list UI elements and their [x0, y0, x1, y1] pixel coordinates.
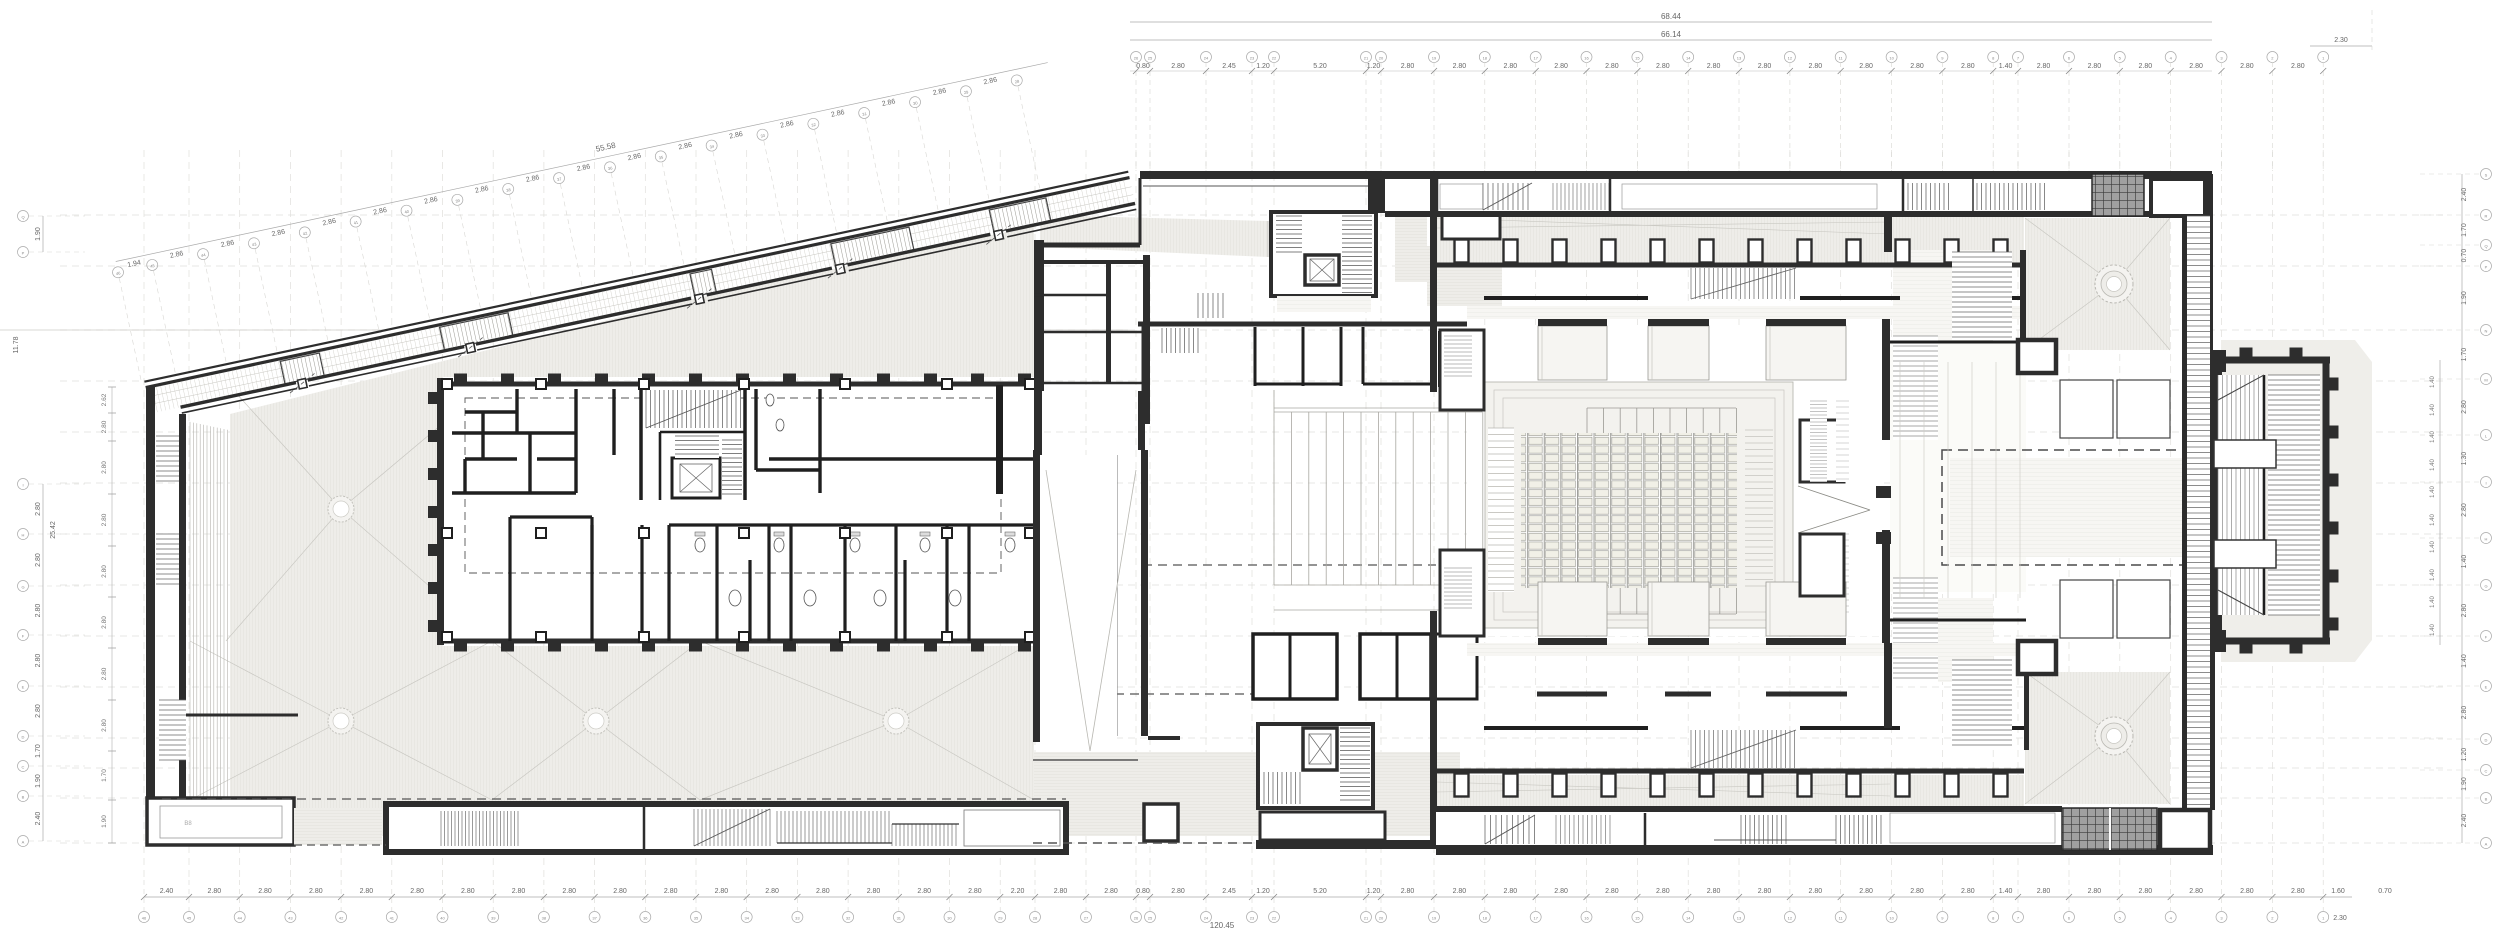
svg-text:2.80: 2.80	[1554, 63, 1568, 70]
svg-text:6: 6	[2068, 56, 2071, 61]
svg-text:1.90: 1.90	[35, 774, 42, 788]
svg-text:9: 9	[1941, 56, 1944, 61]
svg-text:55.58: 55.58	[595, 141, 617, 154]
svg-text:2.80: 2.80	[1656, 63, 1670, 70]
svg-text:35: 35	[658, 154, 664, 160]
svg-text:1.40: 1.40	[2430, 514, 2436, 526]
svg-text:2.86: 2.86	[169, 250, 184, 260]
svg-text:2.80: 2.80	[360, 888, 374, 895]
svg-text:45: 45	[187, 916, 192, 921]
svg-text:2.80: 2.80	[968, 888, 982, 895]
svg-text:2.80: 2.80	[765, 888, 779, 895]
svg-text:31: 31	[897, 916, 902, 921]
svg-text:11: 11	[1839, 56, 1844, 61]
svg-text:2.80: 2.80	[101, 719, 108, 732]
svg-text:1.40: 1.40	[2430, 431, 2436, 443]
svg-text:1.40: 1.40	[2430, 569, 2436, 581]
svg-text:2.86: 2.86	[271, 229, 286, 239]
svg-text:2.80: 2.80	[1859, 888, 1873, 895]
svg-text:1.40: 1.40	[1999, 888, 2013, 895]
svg-text:2.80: 2.80	[1758, 888, 1772, 895]
svg-text:10: 10	[1889, 916, 1894, 921]
svg-text:33: 33	[760, 133, 766, 139]
svg-text:2.80: 2.80	[101, 667, 108, 680]
svg-text:2.80: 2.80	[1758, 63, 1772, 70]
svg-text:2.80: 2.80	[35, 553, 42, 567]
svg-text:P: P	[2485, 265, 2488, 270]
svg-text:1.90: 1.90	[101, 815, 108, 828]
svg-text:38: 38	[542, 916, 547, 921]
svg-text:2.40: 2.40	[160, 888, 174, 895]
svg-text:R: R	[2485, 214, 2488, 219]
svg-text:2.80: 2.80	[917, 888, 931, 895]
svg-text:23: 23	[1250, 916, 1255, 921]
svg-text:2: 2	[2271, 916, 2274, 921]
svg-text:15: 15	[1635, 916, 1640, 921]
svg-text:28: 28	[1033, 916, 1038, 921]
svg-text:2.80: 2.80	[1605, 888, 1619, 895]
svg-text:2.86: 2.86	[780, 120, 795, 130]
svg-text:H: H	[22, 533, 25, 538]
svg-text:2.80: 2.80	[1503, 888, 1517, 895]
svg-text:2.80: 2.80	[1104, 888, 1118, 895]
svg-text:F: F	[2485, 635, 2488, 640]
svg-text:1: 1	[2322, 56, 2325, 61]
svg-text:26: 26	[1134, 56, 1139, 61]
svg-text:1.70: 1.70	[35, 744, 42, 758]
svg-text:2.86: 2.86	[881, 98, 896, 108]
svg-text:13: 13	[1737, 56, 1742, 61]
svg-text:1.40: 1.40	[2430, 486, 2436, 498]
svg-text:44: 44	[201, 252, 207, 258]
svg-text:I: I	[2485, 481, 2486, 486]
svg-text:66.14: 66.14	[1661, 30, 1682, 39]
svg-text:2.80: 2.80	[1453, 888, 1467, 895]
svg-text:2.80: 2.80	[2240, 888, 2254, 895]
svg-text:8: 8	[1992, 916, 1995, 921]
svg-text:31: 31	[862, 111, 868, 117]
svg-text:2.80: 2.80	[1401, 888, 1415, 895]
svg-text:2.62: 2.62	[101, 393, 108, 406]
svg-text:32: 32	[846, 916, 851, 921]
svg-text:2.80: 2.80	[2037, 888, 2051, 895]
svg-text:2.80: 2.80	[258, 888, 272, 895]
svg-text:B: B	[22, 795, 25, 800]
svg-text:21: 21	[1364, 56, 1369, 61]
svg-text:45: 45	[150, 263, 156, 269]
svg-text:1.40: 1.40	[2430, 459, 2436, 471]
svg-text:2.80: 2.80	[2291, 63, 2305, 70]
svg-text:16: 16	[1584, 56, 1589, 61]
svg-text:2.80: 2.80	[1054, 888, 1068, 895]
svg-text:17: 17	[1533, 56, 1538, 61]
svg-text:2.86: 2.86	[525, 174, 540, 184]
svg-text:2.80: 2.80	[410, 888, 424, 895]
svg-text:1.60: 1.60	[2331, 888, 2345, 895]
svg-text:2.80: 2.80	[1656, 888, 1670, 895]
svg-text:35: 35	[694, 916, 699, 921]
svg-text:2.80: 2.80	[1171, 63, 1185, 70]
svg-text:E: E	[2485, 685, 2488, 690]
svg-text:B8: B8	[184, 821, 192, 827]
svg-text:13: 13	[1737, 916, 1742, 921]
svg-text:2: 2	[2271, 56, 2274, 61]
svg-text:1.40: 1.40	[2430, 404, 2436, 416]
svg-text:16: 16	[1584, 916, 1589, 921]
svg-text:C: C	[2485, 769, 2488, 774]
svg-text:2.80: 2.80	[35, 604, 42, 618]
svg-text:41: 41	[390, 916, 395, 921]
svg-text:2.86: 2.86	[729, 131, 744, 141]
svg-text:2.30: 2.30	[2333, 915, 2347, 922]
svg-text:2.80: 2.80	[1961, 888, 1975, 895]
svg-text:25.42: 25.42	[50, 521, 57, 539]
svg-text:44: 44	[237, 916, 242, 921]
svg-text:11: 11	[1839, 916, 1844, 921]
svg-text:18: 18	[1483, 916, 1488, 921]
svg-text:2.80: 2.80	[2138, 63, 2152, 70]
svg-text:1.40: 1.40	[2430, 541, 2436, 553]
svg-text:26: 26	[1134, 916, 1139, 921]
svg-text:46: 46	[116, 270, 122, 276]
svg-text:L: L	[2485, 434, 2488, 439]
svg-text:S: S	[2485, 173, 2488, 178]
svg-text:12: 12	[1788, 56, 1793, 61]
svg-text:41: 41	[353, 219, 359, 225]
svg-text:19: 19	[1432, 56, 1437, 61]
svg-text:22: 22	[1272, 56, 1277, 61]
svg-text:5.20: 5.20	[1313, 888, 1327, 895]
svg-text:5: 5	[2119, 916, 2122, 921]
svg-text:21: 21	[1364, 916, 1369, 921]
svg-text:30: 30	[913, 100, 919, 106]
svg-text:D: D	[22, 735, 25, 740]
svg-text:N: N	[2485, 329, 2488, 334]
svg-text:2.86: 2.86	[474, 185, 489, 195]
svg-text:1.20: 1.20	[1256, 888, 1270, 895]
svg-text:32: 32	[811, 122, 817, 128]
svg-text:2.80: 2.80	[512, 888, 526, 895]
svg-text:17: 17	[1533, 916, 1538, 921]
svg-text:34: 34	[744, 916, 749, 921]
svg-text:34: 34	[709, 143, 715, 149]
svg-text:1.94: 1.94	[127, 259, 142, 269]
svg-text:2.80: 2.80	[715, 888, 729, 895]
svg-text:20: 20	[1379, 56, 1384, 61]
svg-text:2.80: 2.80	[1503, 63, 1517, 70]
svg-text:2.80: 2.80	[613, 888, 627, 895]
svg-text:1.20: 1.20	[1367, 63, 1381, 70]
svg-text:120.45: 120.45	[1210, 921, 1235, 930]
svg-text:20: 20	[1379, 916, 1384, 921]
svg-text:1.40: 1.40	[2430, 376, 2436, 388]
svg-text:H: H	[2485, 537, 2488, 542]
svg-text:2.86: 2.86	[932, 87, 947, 97]
svg-text:2.80: 2.80	[2037, 63, 2051, 70]
svg-text:30: 30	[947, 916, 952, 921]
svg-text:2.80: 2.80	[1961, 63, 1975, 70]
svg-text:G: G	[21, 585, 24, 590]
svg-text:2.80: 2.80	[207, 888, 221, 895]
svg-text:43: 43	[288, 916, 293, 921]
svg-text:4: 4	[2170, 56, 2173, 61]
svg-text:40: 40	[440, 916, 445, 921]
svg-text:2.80: 2.80	[1554, 888, 1568, 895]
svg-text:7: 7	[2017, 916, 2020, 921]
svg-text:I: I	[22, 483, 23, 488]
svg-text:2.80: 2.80	[2088, 888, 2102, 895]
svg-text:1.70: 1.70	[101, 769, 108, 782]
svg-text:12: 12	[1788, 916, 1793, 921]
svg-text:5: 5	[2119, 56, 2122, 61]
svg-text:3: 3	[2220, 56, 2223, 61]
svg-text:42: 42	[302, 230, 308, 236]
svg-text:1.40: 1.40	[1999, 63, 2013, 70]
svg-text:2.80: 2.80	[2138, 888, 2152, 895]
svg-text:14: 14	[1686, 916, 1691, 921]
svg-text:2.80: 2.80	[1859, 63, 1873, 70]
svg-text:A: A	[2485, 842, 2488, 847]
svg-text:2.86: 2.86	[220, 239, 235, 249]
svg-text:2.80: 2.80	[2088, 63, 2102, 70]
svg-text:1.40: 1.40	[2430, 624, 2436, 636]
svg-text:36: 36	[607, 165, 613, 171]
svg-text:9: 9	[1941, 916, 1944, 921]
svg-text:2.80: 2.80	[35, 502, 42, 516]
svg-text:0.70: 0.70	[2378, 888, 2392, 895]
svg-text:37: 37	[557, 176, 563, 182]
svg-text:2.20: 2.20	[1011, 888, 1025, 895]
svg-text:2.80: 2.80	[1808, 888, 1822, 895]
svg-text:2.45: 2.45	[1222, 888, 1236, 895]
svg-text:3: 3	[2220, 916, 2223, 921]
svg-text:P: P	[22, 251, 25, 256]
svg-text:24: 24	[1204, 916, 1209, 921]
svg-text:2.86: 2.86	[576, 163, 591, 173]
svg-text:11.78: 11.78	[13, 336, 20, 353]
svg-text:28: 28	[1014, 78, 1020, 84]
svg-text:29: 29	[963, 89, 969, 95]
svg-text:8: 8	[1992, 56, 1995, 61]
svg-text:1: 1	[2322, 916, 2325, 921]
svg-text:2.80: 2.80	[101, 513, 108, 526]
svg-text:1.90: 1.90	[35, 227, 42, 241]
svg-text:36: 36	[643, 916, 648, 921]
svg-text:27: 27	[1084, 916, 1089, 921]
svg-text:14: 14	[1686, 56, 1691, 61]
svg-text:29: 29	[998, 916, 1003, 921]
svg-text:2.80: 2.80	[1401, 63, 1415, 70]
svg-text:2.80: 2.80	[1910, 888, 1924, 895]
svg-text:19: 19	[1432, 916, 1437, 921]
svg-text:2.86: 2.86	[424, 196, 439, 206]
svg-text:2.80: 2.80	[35, 704, 42, 718]
svg-text:4: 4	[2170, 916, 2173, 921]
svg-text:2.80: 2.80	[309, 888, 323, 895]
svg-text:24: 24	[1204, 56, 1209, 61]
svg-text:25: 25	[1148, 916, 1153, 921]
svg-text:2.80: 2.80	[562, 888, 576, 895]
svg-text:2.45: 2.45	[1222, 63, 1236, 70]
svg-text:7: 7	[2017, 56, 2020, 61]
svg-text:2.80: 2.80	[101, 616, 108, 629]
svg-text:2.80: 2.80	[35, 654, 42, 668]
svg-text:2.80: 2.80	[101, 461, 108, 474]
svg-text:Q: Q	[21, 215, 24, 220]
svg-text:0.80: 0.80	[1136, 888, 1150, 895]
svg-text:15: 15	[1635, 56, 1640, 61]
svg-text:46: 46	[142, 916, 147, 921]
svg-text:2.80: 2.80	[1707, 63, 1721, 70]
svg-text:2.80: 2.80	[1171, 888, 1185, 895]
svg-text:6: 6	[2068, 916, 2071, 921]
svg-text:42: 42	[339, 916, 344, 921]
svg-text:25: 25	[1148, 56, 1153, 61]
svg-text:2.86: 2.86	[627, 153, 642, 163]
svg-text:2.80: 2.80	[816, 888, 830, 895]
svg-text:2.80: 2.80	[2189, 63, 2203, 70]
svg-text:2.80: 2.80	[1707, 888, 1721, 895]
svg-text:2.80: 2.80	[867, 888, 881, 895]
svg-text:2.86: 2.86	[678, 142, 693, 152]
svg-text:40: 40	[404, 209, 410, 215]
svg-text:2.80: 2.80	[2189, 888, 2203, 895]
svg-text:43: 43	[251, 241, 257, 247]
svg-text:2.80: 2.80	[101, 565, 108, 578]
svg-text:C: C	[22, 765, 25, 770]
svg-text:2.80: 2.80	[101, 420, 108, 433]
svg-text:33: 33	[795, 916, 800, 921]
svg-text:2.80: 2.80	[1808, 63, 1822, 70]
svg-text:1.20: 1.20	[1256, 63, 1270, 70]
svg-text:5.20: 5.20	[1313, 63, 1327, 70]
svg-text:2.80: 2.80	[461, 888, 475, 895]
svg-text:2.80: 2.80	[2291, 888, 2305, 895]
svg-text:2.80: 2.80	[1453, 63, 1467, 70]
svg-text:68.44: 68.44	[1661, 12, 1682, 21]
svg-text:A: A	[22, 840, 25, 845]
svg-text:2.80: 2.80	[2240, 63, 2254, 70]
svg-text:10: 10	[1889, 56, 1894, 61]
svg-text:D: D	[2485, 738, 2488, 743]
svg-text:2.40: 2.40	[35, 812, 42, 826]
svg-text:2.80: 2.80	[1605, 63, 1619, 70]
svg-text:23: 23	[1250, 56, 1255, 61]
svg-text:Q: Q	[2484, 244, 2487, 249]
svg-text:B: B	[2485, 797, 2488, 802]
svg-text:G: G	[2484, 584, 2487, 589]
svg-text:1.40: 1.40	[2430, 596, 2436, 608]
svg-text:M: M	[2484, 378, 2487, 383]
svg-text:2.86: 2.86	[322, 218, 337, 228]
svg-text:F: F	[22, 634, 25, 639]
svg-text:2.80: 2.80	[664, 888, 678, 895]
svg-text:2.30: 2.30	[2334, 37, 2348, 44]
svg-text:E: E	[22, 685, 25, 690]
svg-text:1.20: 1.20	[1367, 888, 1381, 895]
svg-text:39: 39	[491, 916, 496, 921]
svg-text:38: 38	[506, 187, 512, 193]
svg-text:39: 39	[455, 198, 461, 204]
svg-text:2.86: 2.86	[830, 109, 845, 119]
svg-text:2.80: 2.80	[1910, 63, 1924, 70]
svg-text:22: 22	[1272, 916, 1277, 921]
svg-text:37: 37	[592, 916, 597, 921]
svg-text:2.86: 2.86	[983, 77, 998, 87]
svg-text:18: 18	[1483, 56, 1488, 61]
